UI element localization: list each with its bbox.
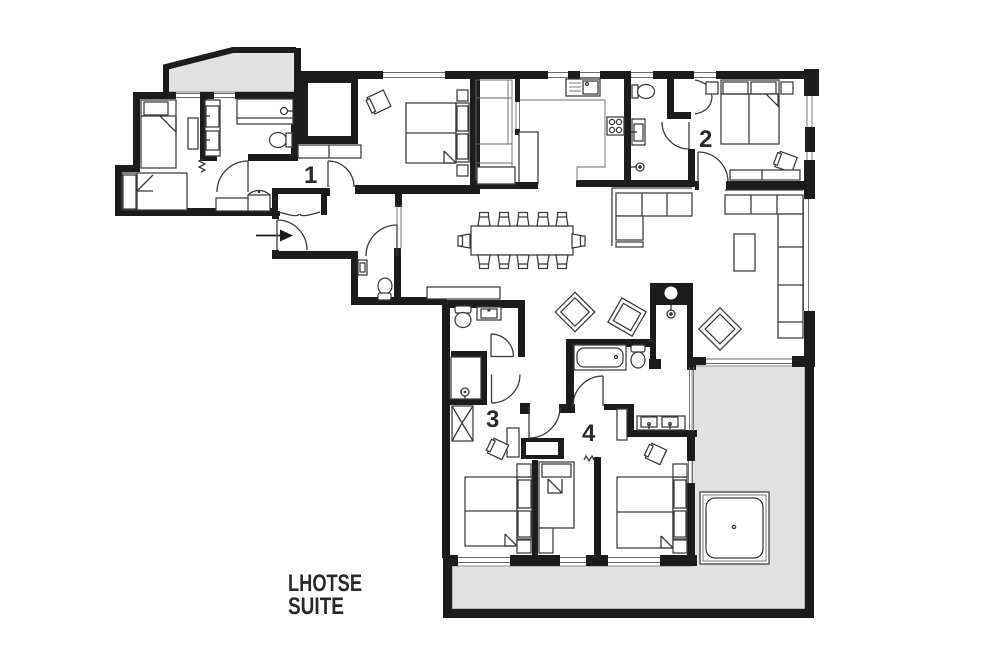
- svg-text:4: 4: [582, 420, 596, 447]
- svg-text:SUITE: SUITE: [288, 593, 344, 620]
- svg-text:3: 3: [486, 406, 499, 433]
- svg-text:2: 2: [699, 126, 712, 153]
- svg-text:1: 1: [304, 162, 317, 189]
